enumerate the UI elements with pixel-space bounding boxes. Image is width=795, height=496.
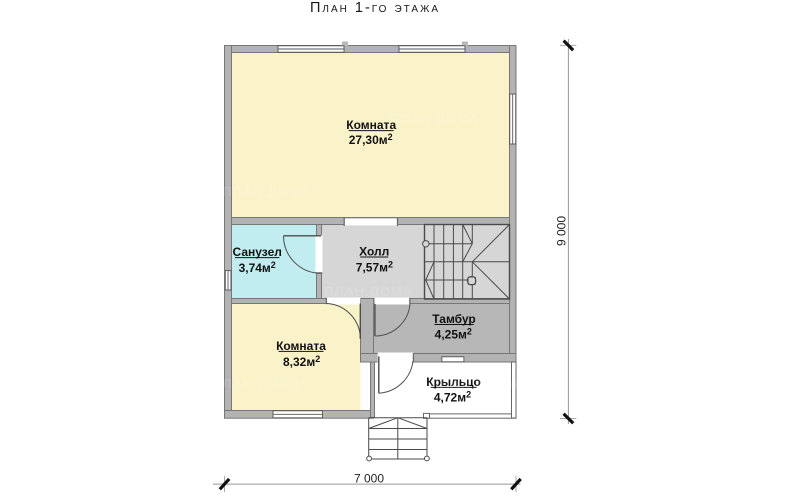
svg-text:Комната: Комната: [346, 118, 396, 132]
svg-text:3,74м2: 3,74м2: [239, 260, 276, 275]
svg-text:ПЛАН.ДОМА: ПЛАН.ДОМА: [324, 284, 413, 299]
svg-text:4,72м2: 4,72м2: [434, 390, 471, 405]
svg-text:Санузел: Санузел: [233, 245, 282, 259]
svg-text:Комната: Комната: [276, 339, 326, 353]
svg-text:Тамбур: Тамбур: [432, 312, 476, 326]
svg-text:9 000: 9 000: [555, 216, 569, 246]
svg-text:7,57м2: 7,57м2: [356, 259, 393, 274]
svg-text:ПЛАН.ДОМА: ПЛАН.ДОМА: [390, 111, 479, 126]
svg-text:ПЛАН.ДОМА: ПЛАН.ДОМА: [430, 376, 519, 391]
svg-text:ПЛАН.ДОМА: ПЛАН.ДОМА: [212, 376, 301, 391]
svg-text:7 000: 7 000: [354, 472, 384, 486]
svg-text:8,32м2: 8,32м2: [283, 354, 320, 369]
svg-text:ПЛАН.ДОМА: ПЛАН.ДОМА: [222, 184, 311, 199]
svg-text:4,25м2: 4,25м2: [435, 327, 472, 342]
svg-text:27,30м2: 27,30м2: [349, 132, 393, 147]
svg-text:План 1-го этажа: План 1-го этажа: [310, 0, 440, 16]
svg-text:Холл: Холл: [359, 244, 389, 258]
